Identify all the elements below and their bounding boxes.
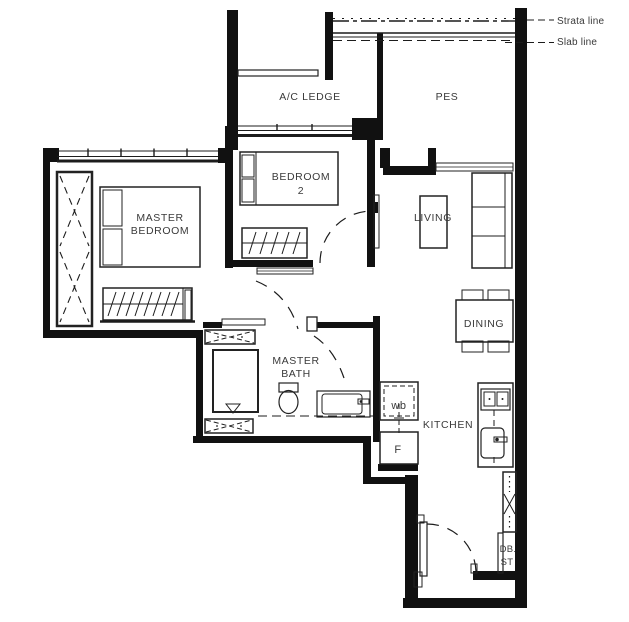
- mb-tall-cabinet-x-marks: [60, 176, 89, 322]
- door-swing-arcs: [256, 211, 372, 378]
- br2-door-swing-arc: [320, 211, 372, 263]
- labels: Strata line Slab line A/C LEDGE PES MAST…: [131, 16, 605, 568]
- bath-left-wall: [196, 330, 203, 442]
- entry-door-leaf: [420, 522, 427, 576]
- fridge-label: F: [394, 444, 401, 456]
- vanity-faucet-dot: [360, 400, 363, 403]
- dining-label: DINING: [464, 318, 504, 330]
- kitchen-faucet-dot: [495, 438, 499, 442]
- bedroom2-furniture: [240, 152, 338, 258]
- master-bedroom-furniture: [57, 172, 200, 326]
- master-bedroom-label-line2: BEDROOM: [131, 225, 189, 237]
- pes-left-wall: [377, 33, 383, 121]
- br2-pillow-2: [242, 179, 254, 202]
- ac-ledge-screen: [238, 70, 318, 76]
- bath-bottom-outer-wall: [193, 436, 371, 443]
- washer-label: wb: [390, 400, 406, 412]
- br2-bottom-wall: [233, 260, 313, 267]
- hob-burner-dot: [502, 398, 504, 400]
- hob-burner-dot: [489, 398, 491, 400]
- vanity-basin: [322, 394, 362, 414]
- bath-top-wall-right: [317, 322, 373, 328]
- pes-label: PES: [436, 91, 459, 103]
- mb-left-wall: [43, 148, 50, 338]
- mb-bottom-wall: [43, 330, 203, 338]
- dbst-label-line2: ST: [501, 557, 514, 568]
- floor-plan: Strata line Slab line A/C LEDGE PES MAST…: [0, 0, 629, 622]
- floor-plan-svg: Strata line Slab line A/C LEDGE PES MAST…: [0, 0, 629, 622]
- hatch-box-lower: [205, 419, 253, 433]
- bedroom2-label-line1: BEDROOM: [272, 171, 330, 183]
- bath-right-wall: [373, 316, 380, 442]
- corridor-left-wall: [405, 475, 418, 608]
- entry-door-swing-arc: [427, 524, 476, 573]
- sofa: [472, 173, 512, 268]
- hatch-box-upper: [205, 330, 255, 344]
- bath-door-jamb: [307, 317, 317, 331]
- living-label: LIVING: [414, 212, 452, 224]
- windows: [57, 70, 513, 325]
- slab-line-label: Slab line: [557, 37, 597, 48]
- br2-pillow-1: [242, 155, 254, 177]
- master-bedroom-label-line1: MASTER: [136, 212, 183, 224]
- entry-area: [414, 472, 516, 587]
- shower: [213, 350, 258, 412]
- fridge-bottom-wall: [378, 464, 418, 471]
- ac-ledge-label: A/C LEDGE: [279, 91, 340, 103]
- step-wall-v: [363, 440, 371, 484]
- bedroom2-label-line2: 2: [298, 185, 304, 197]
- dbst-label-line1: DB.: [500, 544, 517, 555]
- kitchen-label: KITCHEN: [423, 419, 473, 431]
- living-top-nub: [428, 148, 436, 174]
- bath-slider: [222, 319, 265, 325]
- ac-ledge-corner-block: [352, 118, 383, 140]
- kitchen-sink: [481, 428, 504, 458]
- dbst-bottom-wall: [473, 571, 517, 580]
- master-bath-label-line1: MASTER: [272, 355, 319, 367]
- master-bath-label-line2: BATH: [281, 368, 311, 380]
- mb-tall-cabinet: [57, 172, 92, 326]
- ac-window-mullions: [277, 124, 312, 131]
- mb-pillow-1: [103, 190, 122, 226]
- strata-line-label: Strata line: [557, 16, 604, 27]
- ac-ledge-left-wall: [227, 10, 238, 150]
- tall-hatched-cabinet: [503, 472, 516, 532]
- pes-step-block: [380, 148, 390, 168]
- mb-window-mullions: [88, 149, 187, 158]
- hall-door-swing-arc: [256, 281, 298, 329]
- bottom-wall: [403, 598, 527, 608]
- mb-pillow-2: [103, 229, 122, 265]
- mb-top-left-cap: [43, 148, 59, 162]
- mb-slider-leaf: [185, 290, 191, 322]
- bath-top-wall-left: [203, 322, 222, 328]
- right-wall: [515, 8, 527, 608]
- ac-ledge-right-pier: [325, 12, 333, 80]
- toilet-bowl: [279, 391, 298, 414]
